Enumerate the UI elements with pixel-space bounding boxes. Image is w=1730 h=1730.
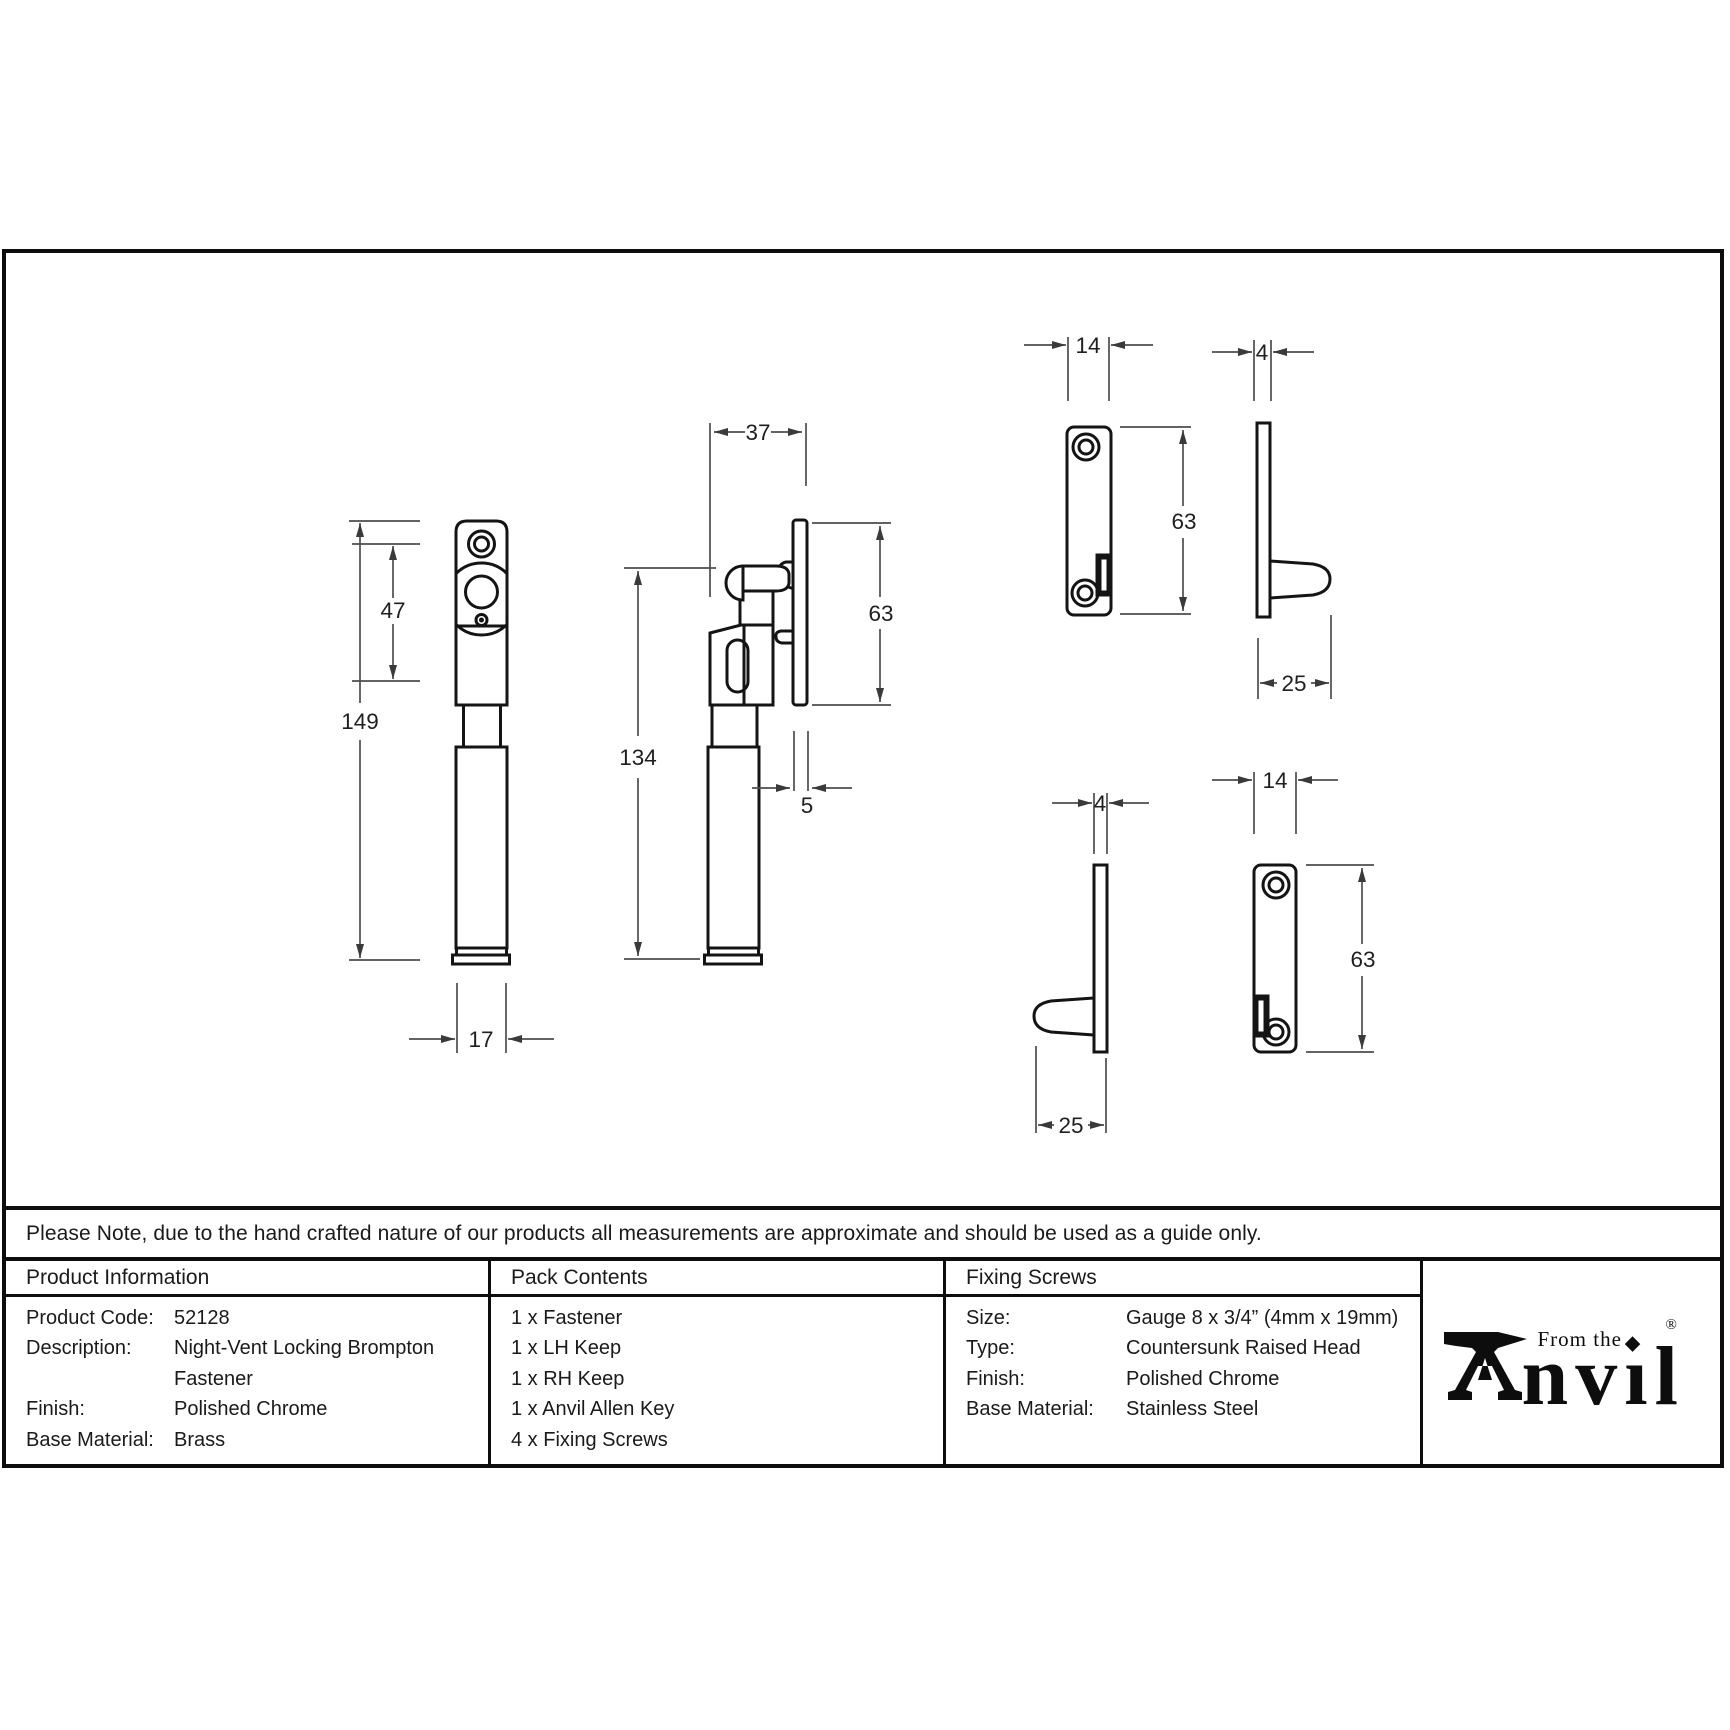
fixing-screws-cell: Size: Gauge 8 x 3/4” (4mm x 19mm) Type: …	[946, 1297, 1423, 1464]
table-row: Size: Gauge 8 x 3/4” (4mm x 19mm)	[966, 1303, 1420, 1333]
dim-label-17: 17	[468, 1027, 493, 1052]
dim-label-37: 37	[745, 420, 770, 445]
dim-14-bottom: 14	[1212, 768, 1338, 834]
anvil-icon	[1442, 1328, 1528, 1402]
list-item: 1 x Fastener	[511, 1303, 943, 1333]
dim-134: 134	[619, 568, 716, 959]
dim-63-bottom: 63	[1306, 865, 1376, 1052]
pack-contents-header: Pack Contents	[491, 1261, 946, 1297]
dim-63-top: 63	[1120, 427, 1197, 614]
dim-4-bottom: 4	[1052, 791, 1149, 854]
dim-63-side: 63	[812, 523, 894, 705]
logo-wordmark: nv◆ıl	[1522, 1335, 1685, 1419]
list-item: 4 x Fixing Screws	[511, 1425, 943, 1455]
dim-label-25-bottom: 25	[1058, 1113, 1083, 1138]
measurement-note-bar: Please Note, due to the hand crafted nat…	[2, 1206, 1724, 1261]
dim-17: 17	[409, 983, 554, 1053]
diamond-i-dot: ◆	[1625, 1334, 1640, 1353]
dim-label-14-bottom: 14	[1262, 768, 1287, 793]
table-row: Finish: Polished Chrome	[26, 1394, 488, 1424]
spec-sheet-page: 149 47 17	[0, 0, 1730, 1730]
dim-label-4-top: 4	[1256, 340, 1269, 365]
list-item: 1 x RH Keep	[511, 1364, 943, 1394]
technical-drawing: 149 47 17	[0, 0, 1730, 1730]
dim-label-5: 5	[801, 793, 814, 818]
product-information-cell: Product Code: 52128 Description: Night-V…	[6, 1297, 491, 1464]
table-row: Description: Night-Vent Locking Brompton	[26, 1333, 488, 1363]
table-row: Fastener	[26, 1364, 488, 1394]
dim-label-63-bottom: 63	[1350, 947, 1375, 972]
dim-149: 149	[341, 521, 420, 960]
dim-25-bottom: 25	[1036, 1046, 1106, 1138]
table-row: Type: Countersunk Raised Head	[966, 1333, 1420, 1363]
dim-label-47: 47	[380, 598, 405, 623]
dim-label-63-side: 63	[868, 601, 893, 626]
keep-front-view-bottom	[1254, 865, 1296, 1052]
dim-4-top: 4	[1212, 340, 1314, 401]
measurement-note: Please Note, due to the hand crafted nat…	[6, 1222, 1262, 1246]
dim-label-25-top: 25	[1281, 671, 1306, 696]
keep-side-view-bottom	[1034, 865, 1107, 1052]
dim-5: 5	[752, 731, 852, 818]
table-row: Finish: Polished Chrome	[966, 1364, 1420, 1394]
keep-front-view-top	[1067, 427, 1111, 615]
dim-label-149: 149	[341, 709, 379, 734]
table-row: Base Material: Brass	[26, 1425, 488, 1455]
fixing-screws-header: Fixing Screws	[946, 1261, 1423, 1297]
dim-label-4-bottom: 4	[1094, 791, 1107, 816]
table-row: Product Code: 52128	[26, 1303, 488, 1333]
dim-25-top: 25	[1258, 615, 1331, 699]
product-information-header: Product Information	[6, 1261, 491, 1297]
table-row: Base Material: Stainless Steel	[966, 1394, 1420, 1424]
fastener-front-view	[446, 521, 518, 964]
from-the-anvil-logo: From the nv◆ıl ®	[1442, 1323, 1702, 1403]
dim-14-top: 14	[1024, 333, 1153, 401]
registered-trademark-icon: ®	[1666, 1317, 1677, 1334]
brand-logo-cell: From the nv◆ıl ®	[1423, 1261, 1720, 1464]
dim-47: 47	[352, 544, 420, 681]
list-item: 1 x Anvil Allen Key	[511, 1394, 943, 1424]
keep-side-view-top	[1257, 423, 1330, 617]
dim-label-14-top: 14	[1075, 333, 1100, 358]
list-item: 1 x LH Keep	[511, 1333, 943, 1363]
pack-contents-cell: 1 x Fastener 1 x LH Keep 1 x RH Keep 1 x…	[491, 1297, 946, 1464]
dim-label-63-top: 63	[1171, 509, 1196, 534]
fastener-side-view	[705, 520, 808, 964]
dim-label-134: 134	[619, 745, 657, 770]
spec-table: Product Information Pack Contents Fixing…	[2, 1257, 1724, 1468]
